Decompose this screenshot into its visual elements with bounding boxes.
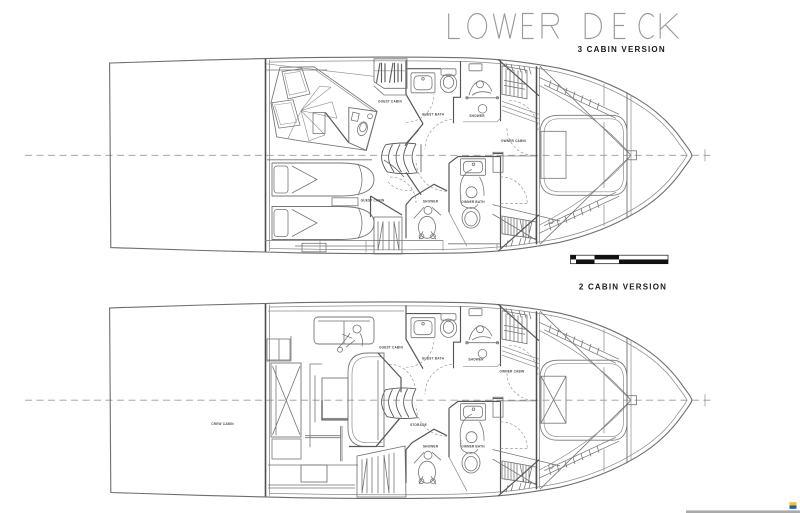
svg-text:GUEST CABIN: GUEST CABIN [378,99,402,103]
svg-text:3 CABIN VERSION: 3 CABIN VERSION [578,45,666,54]
svg-text:GUEST BATH: GUEST BATH [422,357,445,361]
svg-text:SHOWER: SHOWER [469,114,485,118]
svg-text:SHOWER: SHOWER [423,199,439,203]
svg-text:OWNER CABIN: OWNER CABIN [499,370,525,374]
svg-text:GUEST BATH: GUEST BATH [422,112,445,116]
svg-text:CREW CABIN: CREW CABIN [211,422,234,426]
svg-text:OWNER BATH: OWNER BATH [461,200,485,204]
svg-text:2 CABIN VERSION: 2 CABIN VERSION [579,283,667,292]
svg-text:STORAGE: STORAGE [410,423,427,427]
svg-text:OWNER BATH: OWNER BATH [461,445,485,449]
svg-text:GUEST CABIN: GUEST CABIN [379,346,403,350]
svg-text:OWNER CABIN: OWNER CABIN [501,139,527,143]
svg-text:SHOWER: SHOWER [468,358,484,362]
svg-text:GUEST CABIN: GUEST CABIN [361,199,385,203]
svg-text:SHOWER: SHOWER [423,445,439,449]
